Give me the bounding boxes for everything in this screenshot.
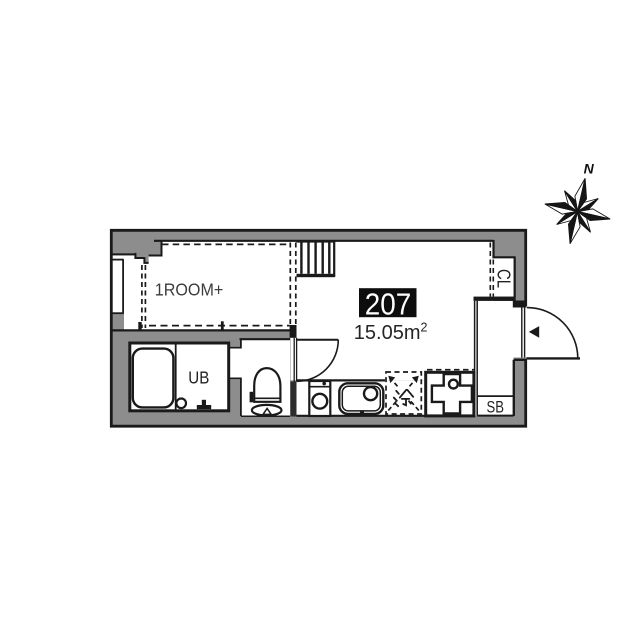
svg-text:UB: UB: [188, 368, 209, 388]
svg-text:207: 207: [365, 287, 412, 322]
svg-text:15.05m2: 15.05m2: [354, 320, 428, 344]
svg-text:CL: CL: [494, 269, 514, 288]
svg-text:N: N: [584, 161, 595, 177]
svg-text:SB: SB: [487, 399, 505, 417]
svg-text:1ROOM+: 1ROOM+: [155, 279, 224, 299]
